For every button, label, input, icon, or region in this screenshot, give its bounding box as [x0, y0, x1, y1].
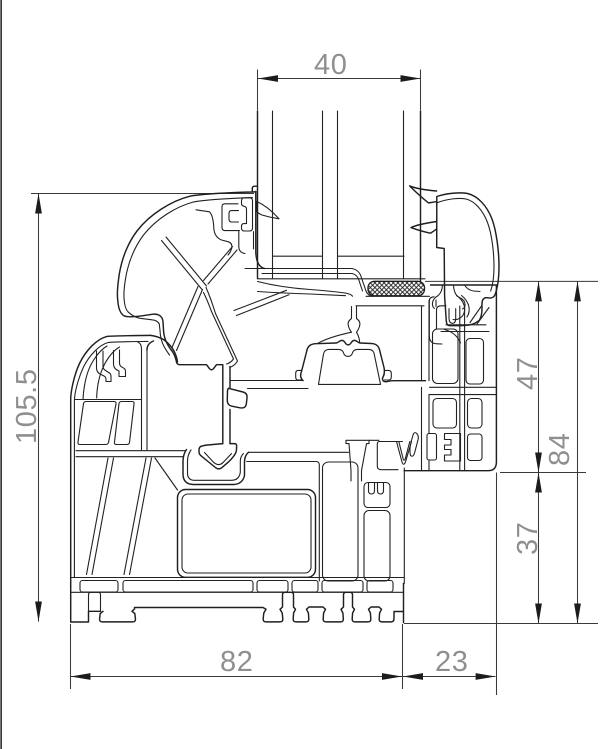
- svg-text:37: 37: [512, 522, 544, 555]
- svg-text:47: 47: [512, 357, 544, 390]
- svg-text:82: 82: [220, 646, 253, 678]
- svg-text:23: 23: [435, 646, 468, 678]
- svg-text:105.5: 105.5: [11, 368, 43, 444]
- svg-text:40: 40: [314, 49, 347, 81]
- svg-text:84: 84: [544, 433, 576, 466]
